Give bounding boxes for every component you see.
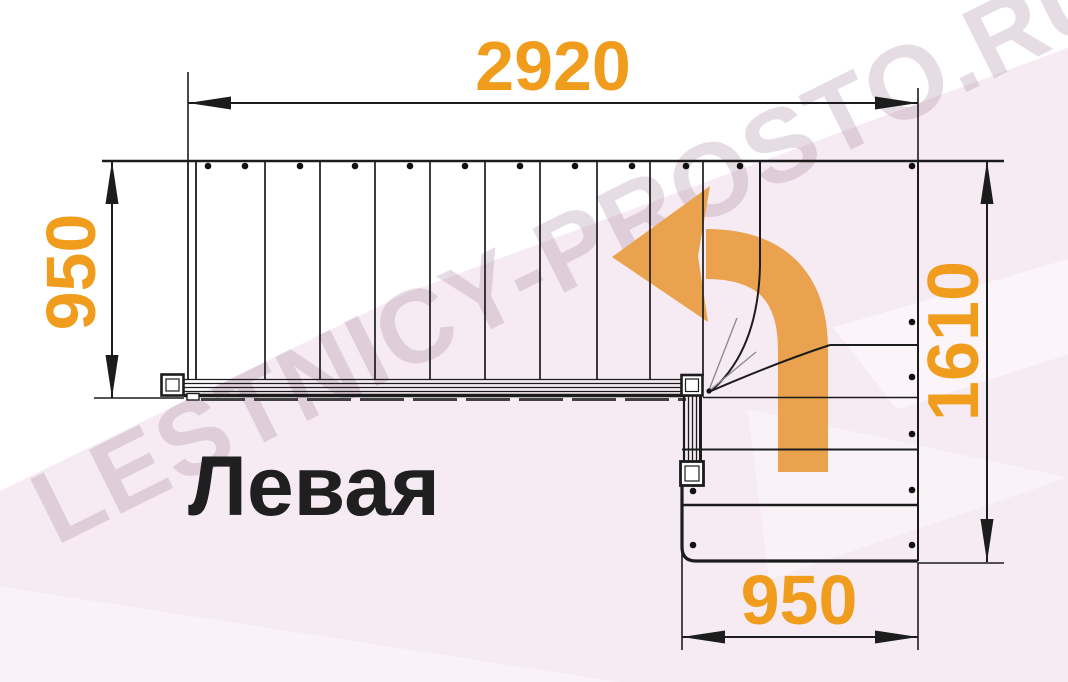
dim-label-left-height: 950 <box>36 214 106 331</box>
stair-plan-canvas: LESTNICY-PROSTO.RU <box>0 0 1068 682</box>
handrail-band <box>184 380 686 401</box>
stringer-end-cap <box>187 394 199 401</box>
plan-variant-label: Левая <box>188 444 440 528</box>
rail-band-vertical <box>684 396 701 462</box>
dim-label-right-height: 1610 <box>918 261 990 421</box>
dim-label-top-width: 2920 <box>475 31 631 101</box>
upper-flight <box>102 161 1004 379</box>
turn-left-arrow-icon <box>612 186 803 472</box>
dim-label-bottom-width: 950 <box>741 565 858 635</box>
